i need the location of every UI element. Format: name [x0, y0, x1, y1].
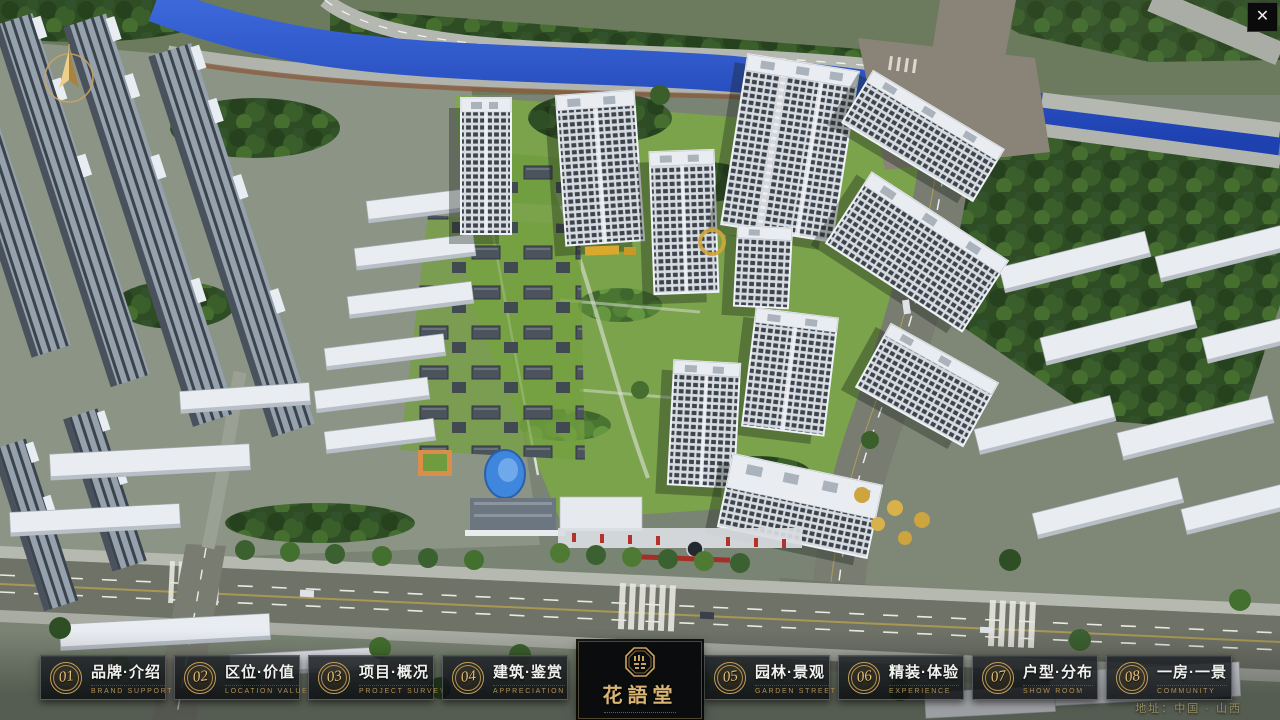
nav-subtitle: SHOW ROOM [1023, 685, 1093, 695]
nav-title: 户型·分布 [1023, 661, 1093, 682]
nav-item-floorplan-distribution[interactable]: 07 户型·分布 SHOW ROOM [972, 655, 1098, 700]
nav-title: 项目·概况 [359, 661, 433, 682]
nav-title: 品牌·介绍 [91, 661, 165, 682]
nav-number: 08 [1124, 669, 1141, 686]
nav-item-brand-intro[interactable]: 01 品牌·介绍 BRAND SUPPORT [40, 655, 166, 700]
nav-item-architecture-appreciation[interactable]: 04 建筑·鉴赏 APPRECIATION [442, 655, 568, 700]
nav-number: 02 [192, 669, 209, 686]
nav-subtitle: GARDEN STREET [755, 685, 829, 695]
nav-item-garden-landscape[interactable]: 05 园林·景观 GARDEN STREET [704, 655, 830, 700]
nav-number-badge: 06 [848, 662, 880, 694]
nav-title: 园林·景观 [755, 661, 829, 682]
entrance-colonnade [558, 528, 802, 548]
nav-number: 05 [722, 669, 739, 686]
nav-number: 04 [460, 669, 477, 686]
nav-subtitle: COMMUNITY [1157, 685, 1227, 695]
nav-number-badge: 07 [982, 662, 1014, 694]
sales-presentation-screen: { "window": { "close_glyph": "✕" }, "log… [0, 0, 1280, 720]
nav-number-badge: 08 [1116, 662, 1148, 694]
project-address: 地址：中国 · 山西 [1135, 700, 1242, 716]
compass-icon [38, 42, 100, 108]
nav-item-location-value[interactable]: 02 区位·价值 LOCATION VALUE [174, 655, 300, 700]
nav-number: 03 [326, 669, 343, 686]
seal-icon [625, 647, 655, 677]
nav-title: 区位·价值 [225, 661, 299, 682]
sales-center [560, 497, 642, 531]
logo-title: 花語堂 [603, 679, 678, 708]
nav-title: 一房·一景 [1157, 661, 1227, 682]
logo-subtitle-rule [604, 712, 676, 713]
nav-item-decoration-experience[interactable]: 06 精装·体验 EXPERIENCE [838, 655, 964, 700]
nav-title: 精装·体验 [889, 661, 959, 682]
nav-number-badge: 04 [452, 662, 484, 694]
nav-number-badge: 02 [184, 662, 216, 694]
nav-item-project-overview[interactable]: 03 项目·概况 PROJECT SURVEY [308, 655, 434, 700]
nav-subtitle: APPRECIATION [493, 685, 565, 695]
nav-subtitle: EXPERIENCE [889, 685, 959, 695]
nav-subtitle: BRAND SUPPORT [91, 685, 165, 695]
nav-number-badge: 05 [714, 662, 746, 694]
logo-home-button[interactable]: 花語堂 [578, 641, 702, 719]
nav-subtitle: PROJECT SURVEY [359, 685, 433, 695]
nav-number: 07 [990, 669, 1007, 686]
nav-number: 06 [856, 669, 873, 686]
nav-item-one-room-one-view[interactable]: 08 一房·一景 COMMUNITY [1106, 655, 1232, 700]
nav-number-badge: 01 [50, 662, 82, 694]
nav-title: 建筑·鉴赏 [493, 661, 565, 682]
nav-number: 01 [58, 669, 75, 686]
close-button[interactable]: ✕ [1247, 2, 1278, 32]
nav-number-badge: 03 [318, 662, 350, 694]
aerial-masterplan-render [0, 0, 1280, 720]
shuttle-bus [585, 245, 619, 255]
nav-subtitle: LOCATION VALUE [225, 685, 299, 695]
